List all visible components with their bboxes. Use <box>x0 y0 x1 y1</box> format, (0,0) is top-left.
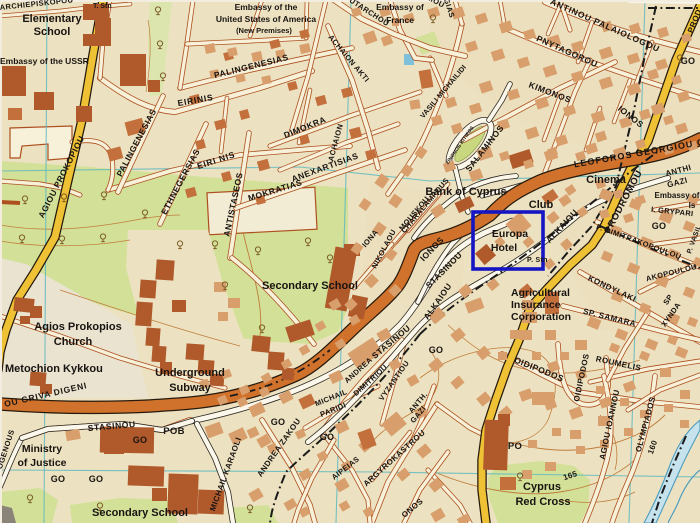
svg-text:T. Stn: T. Stn <box>93 3 112 10</box>
svg-text:GO: GO <box>429 345 443 355</box>
svg-text:Agios Prokopios: Agios Prokopios <box>34 321 121 333</box>
svg-text:Secondary School: Secondary School <box>92 507 188 519</box>
svg-text:Embassy of the USSR: Embassy of the USSR <box>0 56 89 66</box>
svg-text:Corporation: Corporation <box>511 311 571 323</box>
svg-text:Underground: Underground <box>155 367 225 379</box>
svg-text:Cyprus: Cyprus <box>523 481 561 493</box>
svg-text:Ministry: Ministry <box>22 443 62 455</box>
svg-text:Red Cross: Red Cross <box>515 496 570 508</box>
svg-text:GO: GO <box>652 221 666 231</box>
svg-text:School: School <box>34 26 71 38</box>
svg-text:of Justice: of Justice <box>17 457 66 469</box>
svg-text:GO: GO <box>271 417 285 427</box>
svg-text:Secondary School: Secondary School <box>262 280 358 292</box>
svg-text:Club: Club <box>529 199 554 211</box>
svg-text:GO: GO <box>320 432 334 442</box>
svg-text:Elementary: Elementary <box>22 13 82 25</box>
svg-text:Subway: Subway <box>169 382 211 394</box>
svg-text:Embassy of: Embassy of <box>376 2 424 12</box>
svg-text:PO: PO <box>508 441 522 452</box>
svg-text:Metochion Kykkou: Metochion Kykkou <box>5 363 103 375</box>
svg-text:Europa: Europa <box>492 228 528 240</box>
svg-text:Embassy of: Embassy of <box>655 191 700 200</box>
svg-text:United States of America: United States of America <box>216 14 317 24</box>
svg-text:Embassy of the: Embassy of the <box>235 2 298 12</box>
svg-text:GO: GO <box>51 474 65 484</box>
svg-text:(New Premises): (New Premises) <box>236 26 292 35</box>
svg-text:Agricultural: Agricultural <box>511 287 570 299</box>
svg-text:P. Stn: P. Stn <box>527 257 548 264</box>
svg-text:Church: Church <box>54 336 93 348</box>
svg-text:Insurance: Insurance <box>511 299 561 311</box>
svg-text:GO: GO <box>133 435 147 445</box>
svg-text:Hotel: Hotel <box>491 242 517 254</box>
svg-text:GO: GO <box>681 56 695 66</box>
svg-text:Cinema: Cinema <box>586 174 627 186</box>
svg-text:POB: POB <box>163 426 185 437</box>
svg-text:GO: GO <box>89 474 103 484</box>
